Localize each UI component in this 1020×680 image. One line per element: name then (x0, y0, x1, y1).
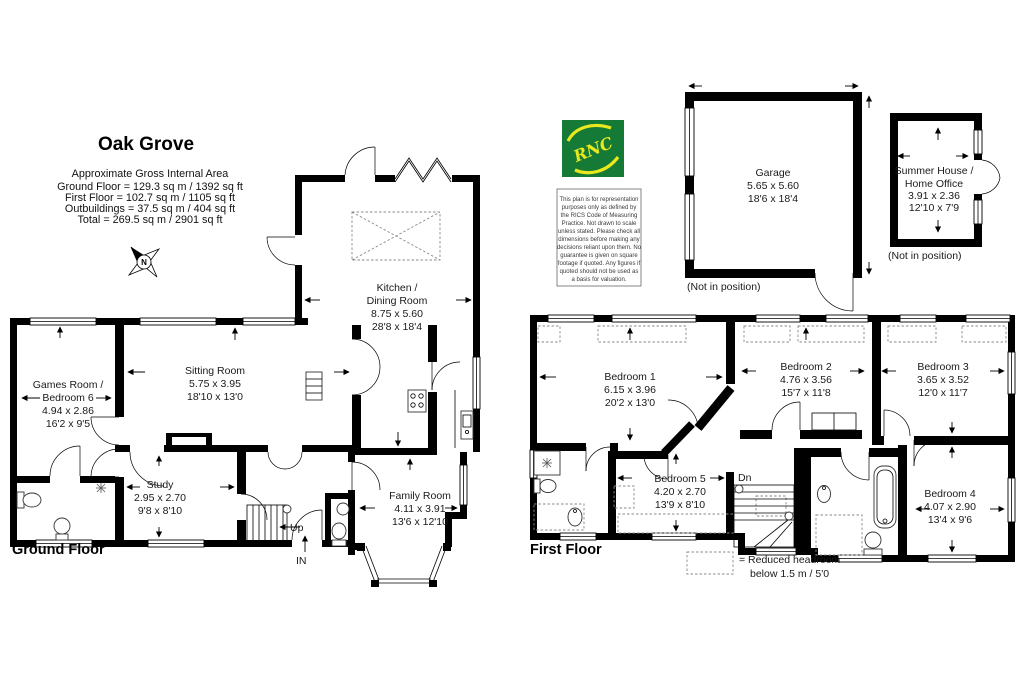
disclaimer-line: dimensions before making any (558, 237, 639, 243)
summer-house-imperial: 12'10 x 7'9 (909, 202, 959, 214)
bedroom1-metric: 6.15 x 3.96 (604, 384, 656, 396)
rnc-logo: RNC (562, 120, 624, 177)
disclaimer-line: This plan is for representation (559, 197, 638, 203)
floorplan-page: Oak Grove Approximate Gross Internal Are… (0, 0, 1020, 680)
floorplan-canvas: Oak Grove Approximate Gross Internal Are… (0, 0, 1020, 680)
disclaimer-line: guarantee is given on square (560, 253, 638, 259)
bedroom3-name: Bedroom 3 (917, 361, 969, 373)
summer-house-name2: Home Office (905, 178, 963, 190)
hob-icon (408, 390, 426, 412)
summer-house-name1: Summer House / (895, 165, 974, 177)
summer-house-doors (982, 160, 1000, 194)
study-name: Study (147, 479, 175, 491)
ground-floor-label: Ground Floor (12, 542, 105, 558)
garage-door (815, 273, 853, 311)
bathtub-icon (874, 466, 896, 528)
reduced-headroom-legend: = Reduced headroom below 1.5 m / 5'0 (687, 552, 841, 580)
bedroom1-imperial: 20'2 x 13'0 (605, 397, 655, 409)
toilet-icon (17, 492, 41, 508)
kitchen-metric: 8.75 x 5.60 (371, 308, 423, 320)
sitting-room-imperial: 18'10 x 13'0 (187, 391, 243, 403)
legend-line2: below 1.5 m / 5'0 (750, 568, 829, 580)
bathroom-sink-icon (818, 486, 831, 503)
wc-sink-icon (337, 503, 349, 515)
bedroom3-metric: 3.65 x 3.52 (917, 374, 969, 386)
bathroom-toilet-icon (864, 532, 882, 555)
kitchen-name2: Dining Room (367, 295, 428, 307)
sitting-room-metric: 5.75 x 3.95 (189, 378, 241, 390)
entrance: IN (296, 536, 307, 567)
disclaimer-line: unless stated. Please check all (558, 229, 640, 235)
disclaimer-line: purposes only as defined by (562, 205, 637, 211)
bedroom1-name: Bedroom 1 (604, 371, 656, 383)
family-room-imperial: 13'6 x 12'10 (392, 516, 448, 528)
disclaimer-line: footage if quoted. Any figures if (558, 261, 641, 267)
header: Oak Grove Approximate Gross Internal Are… (57, 134, 243, 226)
garage-note: (Not in position) (687, 281, 761, 293)
games-room-imperial: 16'2 x 9'5 (46, 418, 90, 430)
disclaimer-line: a basis for valuation. (571, 277, 626, 283)
garage-imperial: 18'6 x 18'4 (748, 193, 798, 205)
games-room-metric: 4.94 x 2.86 (42, 405, 94, 417)
compass-north-label: N (141, 258, 147, 267)
bedroom4-metric: 4.07 x 2.90 (924, 501, 976, 513)
games-room-name2: Bedroom 6 (42, 392, 94, 404)
kitchen-sink-icon (461, 411, 473, 439)
ensuite-shower-icon (534, 451, 560, 475)
family-room-metric: 4.11 x 3.91 (394, 503, 445, 515)
sink-icon (54, 518, 70, 540)
bedroom4-imperial: 13'4 x 9'6 (928, 514, 972, 526)
study-imperial: 9'8 x 8'10 (138, 505, 182, 517)
bedroom5-name: Bedroom 5 (654, 473, 706, 485)
family-room-name: Family Room (389, 490, 451, 502)
ensuite-toilet-icon (534, 479, 556, 493)
disclaimer-box: This plan is for representation purposes… (557, 189, 642, 286)
kitchen-name1: Kitchen / (377, 282, 418, 294)
bedroom3-imperial: 12'0 x 11'7 (918, 387, 968, 399)
summer-house-windows (974, 130, 982, 224)
first-floor-plan: Dn (530, 315, 1015, 562)
summer-house-note: (Not in position) (888, 250, 962, 262)
bedroom4-name: Bedroom 4 (924, 488, 976, 500)
summer-house-plan: Summer House / Home Office 3.91 x 2.36 1… (888, 113, 1000, 262)
compass-icon: N (129, 247, 159, 277)
in-label: IN (296, 555, 307, 567)
area-line-total: Total = 269.5 sq m / 2901 sq ft (78, 214, 223, 226)
disclaimer-line: the RICS Code of Measuring (561, 213, 638, 219)
wc-toilet-icon (332, 523, 346, 546)
fridge-icon (306, 372, 322, 400)
disclaimer-line: decisions reliant upon them. No (557, 245, 642, 251)
study-metric: 2.95 x 2.70 (134, 492, 186, 504)
sitting-room-name: Sitting Room (185, 365, 245, 377)
summer-house-metric: 3.91 x 2.36 (908, 190, 960, 202)
first-floor-label: First Floor (530, 542, 602, 558)
bedroom2-metric: 4.76 x 3.56 (780, 374, 832, 386)
skylight-dashed (352, 212, 440, 260)
bedroom5-imperial: 13'9 x 8'10 (655, 499, 705, 511)
area-heading: Approximate Gross Internal Area (72, 168, 229, 180)
kitchen-imperial: 28'8 x 18'4 (372, 321, 422, 333)
ensuite-sink-icon (568, 508, 582, 526)
games-room-name1: Games Room / (33, 379, 104, 391)
garage-name: Garage (755, 167, 790, 179)
garage-plan: Garage 5.65 x 5.60 18'6 x 18'4 (Not in p… (685, 86, 869, 311)
bedroom5-metric: 4.20 x 2.70 (654, 486, 706, 498)
shower-head-icon (96, 483, 106, 493)
bedroom2-name: Bedroom 2 (780, 361, 832, 373)
disclaimer-line: quoted should not be used as (560, 269, 639, 275)
garage-metric: 5.65 x 5.60 (747, 180, 799, 192)
bedroom2-imperial: 15'7 x 11'8 (781, 387, 831, 399)
legend-line1: = Reduced headroom (739, 554, 841, 566)
folding-door (395, 158, 451, 182)
legend-swatch (687, 552, 733, 574)
page-title: Oak Grove (98, 134, 194, 155)
up-label: Up (290, 522, 304, 534)
disclaimer-line: Practice. Not drawn to scale (562, 221, 637, 227)
dn-label: Dn (738, 472, 752, 484)
